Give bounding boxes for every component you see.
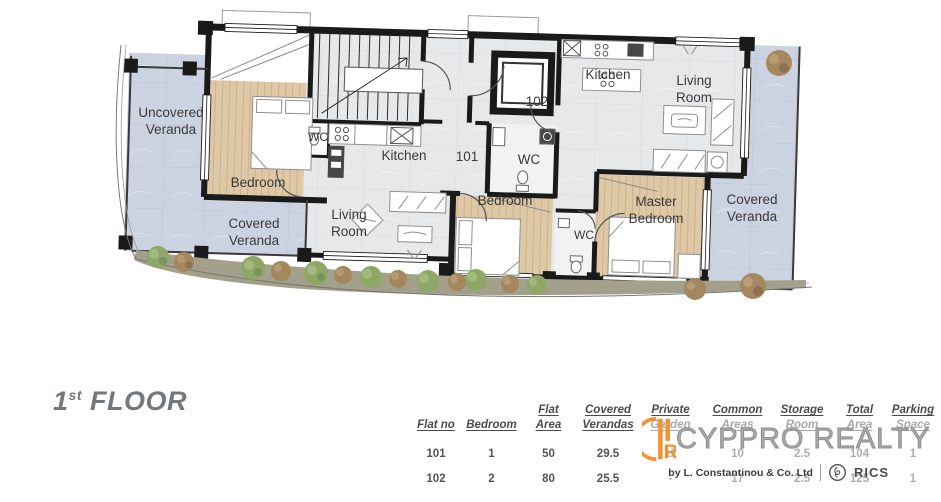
page: Uncovered Veranda Bedroom WC Kitchen 101… [0,0,941,502]
label-uncovered-veranda-1: Uncovered [138,105,203,120]
watermark-divider [820,464,821,481]
label-living-102-2: Room [676,90,712,105]
watermark: R CYPPRO REALTY by L. Constantinou & Co.… [640,416,941,488]
void-area [207,27,312,83]
svg-text:R: R [664,441,676,462]
cyppro-logo-icon: R [642,416,676,462]
cell-flat-no: 102 [408,473,464,485]
watermark-brand-text: CYPPRO REALTY [676,423,930,456]
label-living-102-1: Living [676,73,711,88]
col-header-flat-no: Flat no [408,402,464,434]
floor-ordinal: st [69,387,82,403]
label-wc-102: WC [518,152,541,167]
cell-flat-area: 80 [519,473,578,485]
label-unit-101: 101 [456,149,479,164]
label-wc-102-small: WC [574,228,594,242]
label-living-101-2: Room [331,224,367,239]
label-bedroom-102: Bedroom [478,193,533,208]
col-header-covered-verandas: CoveredVerandas [578,402,638,434]
label-bedroom-101: Bedroom [231,175,286,190]
label-covered-veranda-left-1: Covered [228,216,279,231]
watermark-subline: by L. Constantinou & Co. Ltd RICS [640,463,941,482]
label-covered-veranda-right-1: Covered [726,192,777,207]
cell-bedroom: 1 [464,448,519,460]
cell-covered-verandas: 25.5 [578,473,638,485]
bed-102 [455,217,521,275]
label-kitchen-101: Kitchen [381,148,426,163]
bed-101 [251,96,313,170]
label-living-101-1: Living [331,207,366,222]
col-header-flat-area: FlatArea [519,402,578,434]
label-covered-veranda-right-2: Veranda [727,209,778,224]
label-uncovered-veranda-2: Veranda [146,122,197,137]
page-title: 1stFLOOR [53,386,187,417]
label-wc-101: WC [308,130,328,144]
cell-flat-no: 101 [408,448,464,460]
label-unit-102: 102 [526,94,549,109]
rics-lion-icon [828,463,847,482]
label-kitchen-102: Kitchen [585,67,630,82]
cell-covered-verandas: 29.5 [578,448,638,460]
cell-flat-area: 50 [519,448,578,460]
label-covered-veranda-left-2: Veranda [229,233,280,248]
floor-number: 1 [53,386,69,416]
label-master-bedroom-1: Master [635,194,677,209]
cell-bedroom: 2 [464,473,519,485]
floor-plan: Uncovered Veranda Bedroom WC Kitchen 101… [0,0,941,345]
floor-word: FLOOR [90,386,187,416]
watermark-brand: R CYPPRO REALTY [640,416,941,462]
col-header-bedroom: Bedroom [464,402,519,434]
rics-label: RICS [854,465,889,480]
label-master-bedroom-2: Bedroom [629,211,684,226]
watermark-byline: by L. Constantinou & Co. Ltd [668,467,813,479]
